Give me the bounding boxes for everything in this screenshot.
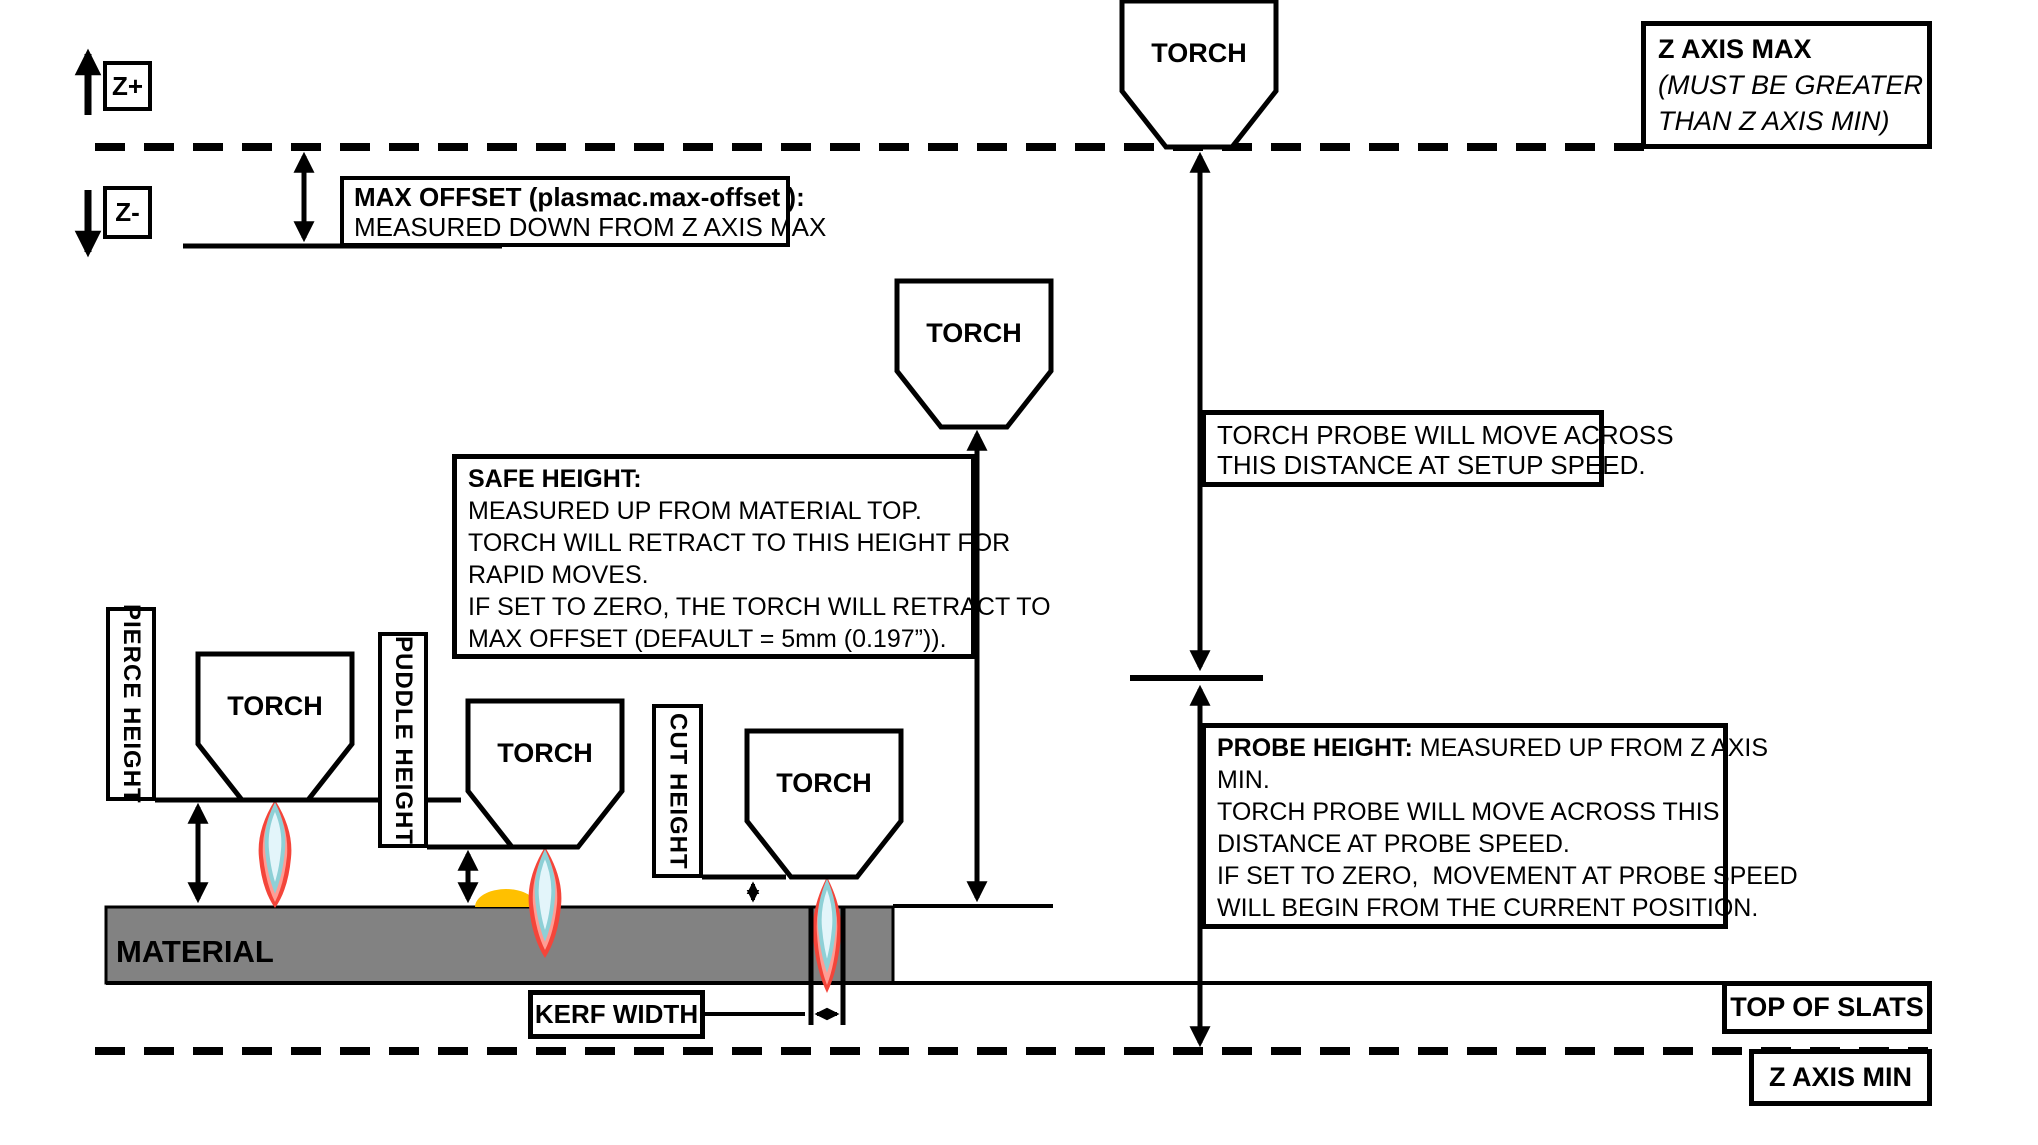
safe-height-line-3: RAPID MOVES. <box>468 559 960 591</box>
cut-flame-core <box>820 884 835 966</box>
torch-label-pierce: TORCH <box>198 691 352 722</box>
safe-height-line-4: IF SET TO ZERO, THE TORCH WILL RETRACT T… <box>468 591 960 623</box>
torch-probe-box: TORCH PROBE WILL MOVE ACROSS THIS DISTAN… <box>1201 410 1604 487</box>
top-of-slats-box: TOP OF SLATS <box>1722 981 1932 1034</box>
max-offset-body: MEASURED DOWN FROM Z AXIS MAX <box>354 212 776 242</box>
probe-height-title: PROBE HEIGHT: <box>1217 734 1413 762</box>
molten-puddle <box>475 889 537 907</box>
max-offset-title: MAX OFFSET (plasmac.max-offset ): <box>354 182 776 212</box>
z-axis-max-note-1: (MUST BE GREATER <box>1658 67 1915 103</box>
cut-height-label-box: CUT HEIGHT <box>652 704 703 878</box>
safe-height-line-1: MEASURED UP FROM MATERIAL TOP. <box>468 495 960 527</box>
probe-height-line-1: MIN. <box>1217 764 1712 796</box>
cut-height-label: CUT HEIGHT <box>664 713 692 870</box>
probe-height-line-2: TORCH PROBE WILL MOVE ACROSS THIS <box>1217 796 1712 828</box>
torch-label-puddle: TORCH <box>468 738 622 769</box>
torch-body-puddle <box>468 701 622 847</box>
probe-height-line-5: WILL BEGIN FROM THE CURRENT POSITION. <box>1217 892 1712 924</box>
torch-body-z-max <box>1122 1 1276 147</box>
pierce-flame <box>259 800 292 908</box>
torch-label-safe: TORCH <box>897 318 1051 349</box>
z-axis-min-box: Z AXIS MIN <box>1749 1049 1932 1106</box>
safe-height-line-5: MAX OFFSET (DEFAULT = 5mm (0.197”)). <box>468 623 960 655</box>
z-axis-max-box: Z AXIS MAX (MUST BE GREATER THAN Z AXIS … <box>1641 21 1932 149</box>
safe-height-title: SAFE HEIGHT: <box>468 463 960 495</box>
plasma-torch-height-diagram: TORCH TORCH TORCH TORCH TORCH Z+ Z- MAX … <box>0 0 2038 1145</box>
pierce-height-label: PIERCE HEIGHT <box>117 604 145 804</box>
probe-height-box: PROBE HEIGHT: MEASURED UP FROM Z AXIS MI… <box>1201 723 1728 929</box>
probe-height-line-4: IF SET TO ZERO, MOVEMENT AT PROBE SPEED <box>1217 860 1712 892</box>
diagram-graphics <box>0 0 2038 1145</box>
pierce-height-label-box: PIERCE HEIGHT <box>106 607 156 801</box>
z-plus-label-box: Z+ <box>103 61 152 111</box>
puddle-flame-core <box>537 854 554 936</box>
material-label: MATERIAL <box>116 934 274 970</box>
puddle-height-label: PUDDLE HEIGHT <box>389 636 417 845</box>
torch-probe-line-1: TORCH PROBE WILL MOVE ACROSS <box>1217 420 1588 450</box>
z-axis-max-title: Z AXIS MAX <box>1658 31 1915 67</box>
probe-height-title-line: PROBE HEIGHT: MEASURED UP FROM Z AXIS <box>1217 732 1712 764</box>
kerf-width-box: KERF WIDTH <box>528 990 705 1039</box>
safe-height-line-2: TORCH WILL RETRACT TO THIS HEIGHT FOR <box>468 527 960 559</box>
z-minus-label-box: Z- <box>103 186 152 239</box>
torch-body-cut <box>747 731 901 877</box>
z-axis-max-note-2: THAN Z AXIS MIN) <box>1658 103 1915 139</box>
probe-height-title-rest: MEASURED UP FROM Z AXIS <box>1413 734 1768 762</box>
torch-body-safe-height <box>897 281 1051 427</box>
torch-label-cut: TORCH <box>747 768 901 799</box>
torch-label-z-max: TORCH <box>1122 38 1276 69</box>
puddle-height-label-box: PUDDLE HEIGHT <box>378 632 428 848</box>
torch-body-pierce <box>198 654 352 800</box>
torch-probe-line-2: THIS DISTANCE AT SETUP SPEED. <box>1217 450 1588 480</box>
probe-height-line-3: DISTANCE AT PROBE SPEED. <box>1217 828 1712 860</box>
safe-height-box: SAFE HEIGHT: MEASURED UP FROM MATERIAL T… <box>452 454 976 659</box>
max-offset-box: MAX OFFSET (plasmac.max-offset ): MEASUR… <box>340 176 790 247</box>
